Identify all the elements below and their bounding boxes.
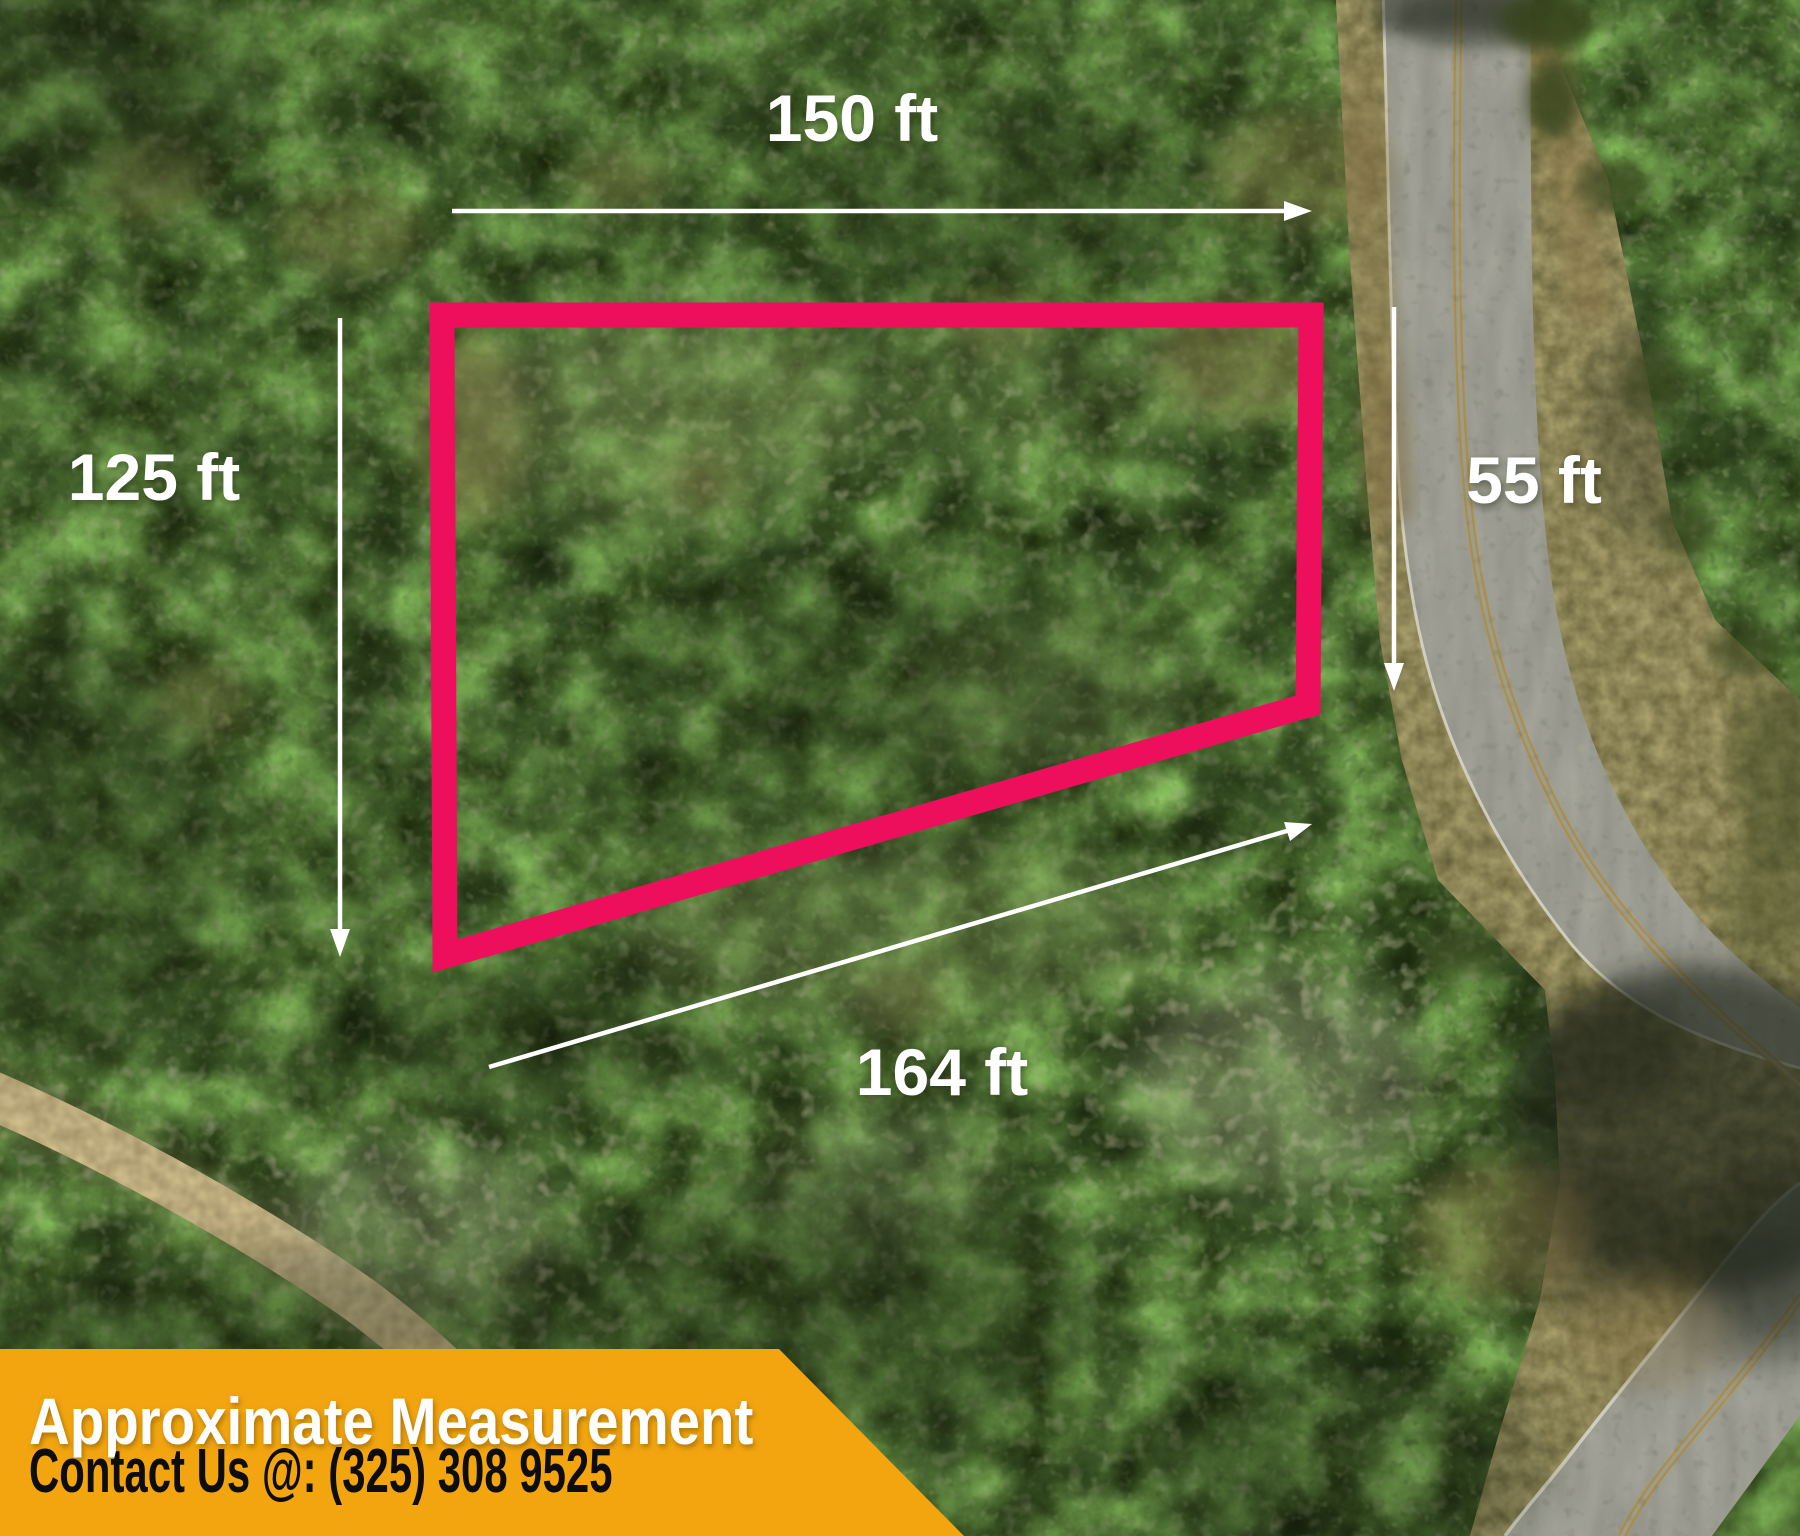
svg-text:Contact Us @: (325) 308 9525: Contact Us @: (325) 308 9525 — [29, 1437, 613, 1506]
svg-text:55 ft: 55 ft — [1466, 443, 1602, 517]
svg-text:164 ft: 164 ft — [856, 1035, 1028, 1109]
svg-text:150 ft: 150 ft — [766, 81, 938, 155]
svg-text:125 ft: 125 ft — [68, 440, 240, 514]
